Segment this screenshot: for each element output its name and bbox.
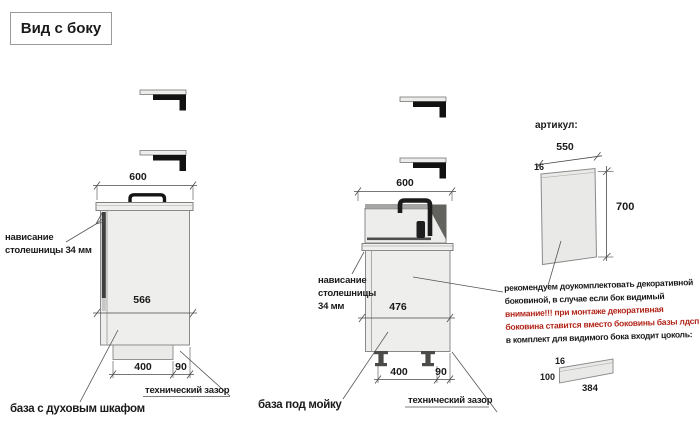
middle-overhang-label: нависание столешницы 34 мм bbox=[318, 274, 376, 313]
middle-countertop bbox=[362, 244, 453, 251]
dim-middle-top-width: 600 bbox=[385, 177, 425, 189]
dim-plinth-length: 384 bbox=[582, 383, 598, 394]
middle-tech-gap-label: технический зазор bbox=[408, 394, 492, 407]
dim-plinth-thickness: 16 bbox=[555, 356, 565, 366]
faucet-handle-icon bbox=[417, 221, 426, 238]
left-cabinet-body bbox=[101, 211, 190, 346]
dim-panel-thickness: 16 bbox=[534, 162, 544, 172]
dim-left-top-width: 600 bbox=[118, 171, 158, 183]
wall-bracket-icon bbox=[140, 90, 186, 111]
dim-middle-body: 476 bbox=[378, 301, 418, 313]
dim-middle-plinth: 400 bbox=[379, 366, 419, 378]
dim-middle-gap: 90 bbox=[426, 366, 456, 378]
left-tech-gap-label: технический зазор bbox=[145, 384, 229, 397]
oven-handle-icon bbox=[130, 195, 165, 203]
left-unit-name-label: база с духовым шкафом bbox=[10, 403, 145, 415]
adjustable-foot-icon bbox=[374, 351, 388, 366]
middle-unit-name-label: база под мойку bbox=[258, 399, 342, 411]
dim-left-plinth: 400 bbox=[123, 361, 163, 373]
left-plinth bbox=[113, 345, 173, 360]
dim-left-gap: 90 bbox=[166, 361, 196, 373]
dim-panel-width: 550 bbox=[545, 141, 585, 153]
dim-plinth-height: 100 bbox=[540, 372, 555, 382]
oven-door-edge bbox=[102, 212, 106, 298]
adjustable-foot-icon bbox=[421, 351, 435, 366]
left-overhang-label: нависание столешницы 34 мм bbox=[5, 231, 92, 257]
wall-bracket-icon bbox=[400, 158, 446, 179]
decorative-panel-note: рекомендуем доукомплектовать декоративно… bbox=[504, 276, 700, 347]
plinth-panel-drawing bbox=[560, 359, 614, 383]
diagram-linework bbox=[0, 0, 700, 428]
dim-panel-height: 700 bbox=[616, 201, 634, 213]
title-box: Вид с боку bbox=[10, 12, 112, 45]
side-view-technical-diagram: Вид с боку 600 566 400 90 нависание стол… bbox=[0, 0, 700, 428]
decorative-side-panel-drawing bbox=[541, 169, 597, 265]
sink-base-unit-drawing bbox=[362, 97, 453, 366]
dim-left-body: 566 bbox=[122, 294, 162, 306]
oven-base-unit-drawing bbox=[96, 90, 193, 360]
left-countertop bbox=[96, 203, 193, 211]
artikul-label: артикул: bbox=[535, 120, 578, 131]
page-title: Вид с боку bbox=[21, 20, 102, 37]
wall-bracket-icon bbox=[400, 97, 446, 118]
wall-bracket-icon bbox=[140, 151, 186, 172]
